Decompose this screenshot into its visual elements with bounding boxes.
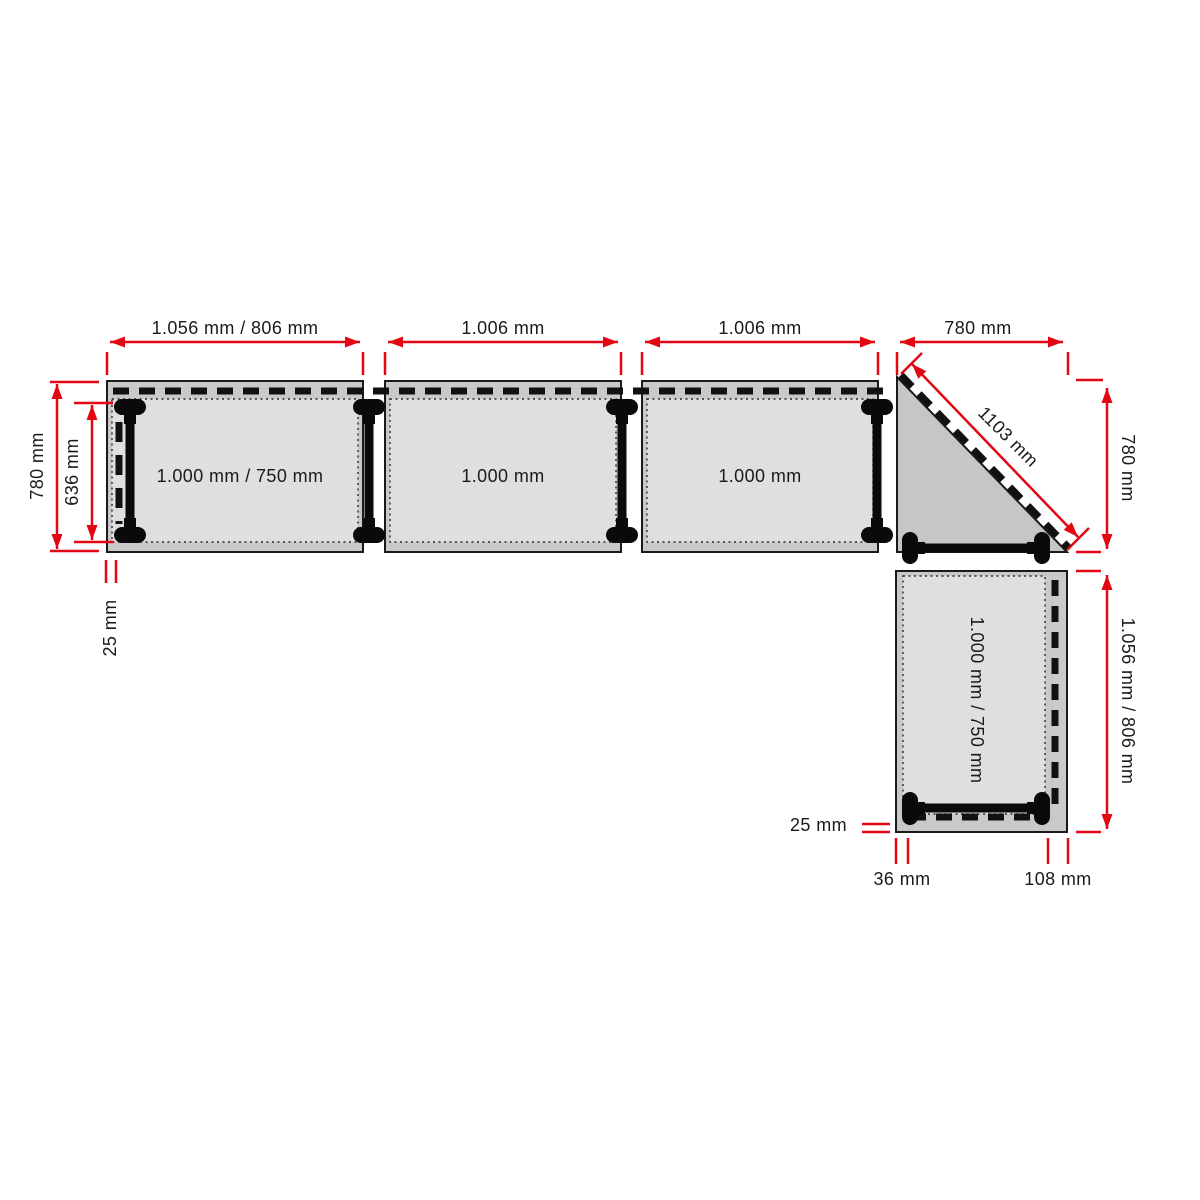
dim-label-left-inner: 636 mm [62, 438, 82, 505]
surface-label-table4: 1.000 mm / 750 mm [967, 617, 987, 784]
arrowhead [1102, 534, 1113, 549]
leg-bar [916, 544, 1036, 553]
surface-label-table1: 1.000 mm / 750 mm [157, 466, 324, 486]
surface-label-table3: 1.000 mm [718, 466, 801, 486]
product-dimension-sheet: 1.056 mm / 806 mm 1.006 mm 1.006 mm 780 … [0, 0, 1200, 1200]
dim-label-left-outer: 780 mm [27, 432, 47, 499]
arrowhead [900, 337, 915, 348]
dim-label-bottom-gap: 25 mm [790, 815, 847, 835]
furniture-dimension-diagram: 1.056 mm / 806 mm 1.006 mm 1.006 mm 780 … [0, 0, 1200, 1200]
dim-label-bottom-right-offset: 108 mm [1024, 869, 1091, 889]
arrowhead [52, 534, 63, 549]
arrowhead [388, 337, 403, 348]
arrowhead [860, 337, 875, 348]
dim-label-bottom-left-offset: 36 mm [873, 869, 930, 889]
arrowhead [87, 525, 98, 540]
dim-label-left-gap: 25 mm [100, 599, 120, 656]
dim-label-table3-width: 1.006 mm [718, 318, 801, 338]
arrowhead [603, 337, 618, 348]
dim-label-table1-width: 1.056 mm / 806 mm [152, 318, 319, 338]
leg-bar [126, 415, 135, 528]
dim-label-corner-depth: 780 mm [1118, 434, 1138, 501]
leg-bar [916, 804, 1036, 813]
corner-link-top [897, 377, 1067, 552]
leg-bar [365, 415, 374, 528]
arrowhead [110, 337, 125, 348]
dim-label-table4-length: 1.056 mm / 806 mm [1118, 618, 1138, 785]
arrowhead [645, 337, 660, 348]
arrowhead [345, 337, 360, 348]
arrowhead [1102, 388, 1113, 403]
arrowhead [1102, 814, 1113, 829]
tabletop-surfaces [107, 377, 1067, 832]
arrowhead [1048, 337, 1063, 348]
dim-label-table2-width: 1.006 mm [461, 318, 544, 338]
arrowhead [52, 384, 63, 399]
leg-bar [873, 415, 882, 528]
arrowhead [1102, 575, 1113, 590]
dim-label-corner-width: 780 mm [944, 318, 1011, 338]
arrowhead [87, 405, 98, 420]
surface-label-table2: 1.000 mm [461, 466, 544, 486]
leg-bar [618, 415, 627, 528]
